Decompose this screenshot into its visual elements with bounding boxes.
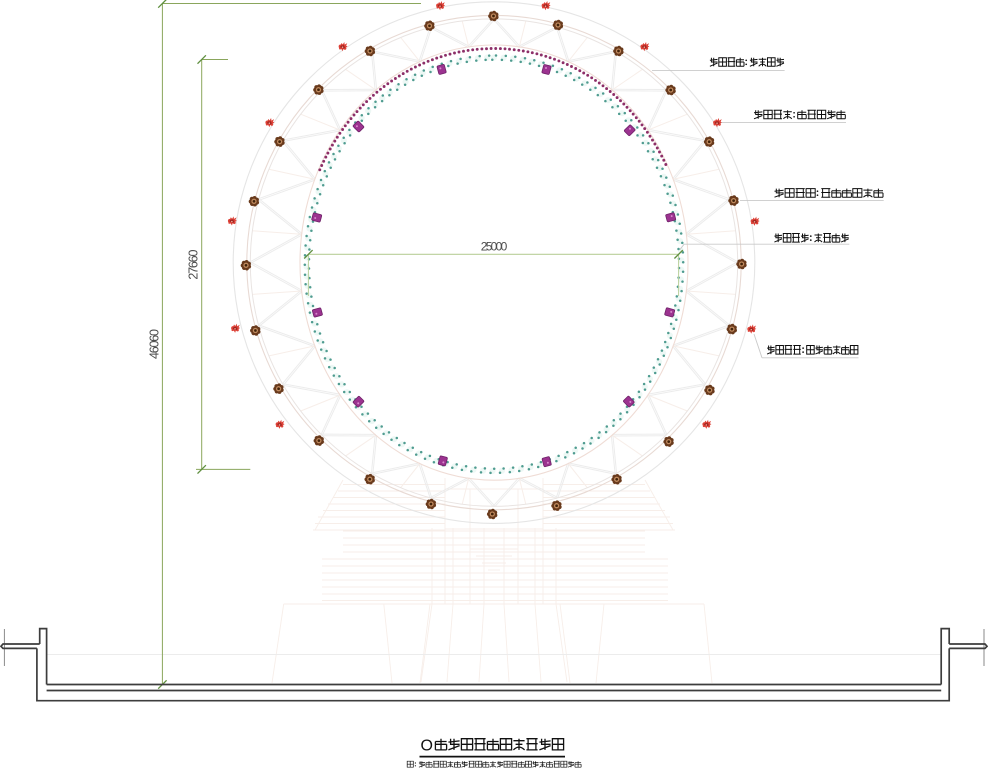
svg-text:O: O [421,737,433,754]
svg-text:46060: 46060 [148,329,162,359]
svg-text:25000: 25000 [481,240,508,254]
svg-text:27660: 27660 [187,250,201,280]
